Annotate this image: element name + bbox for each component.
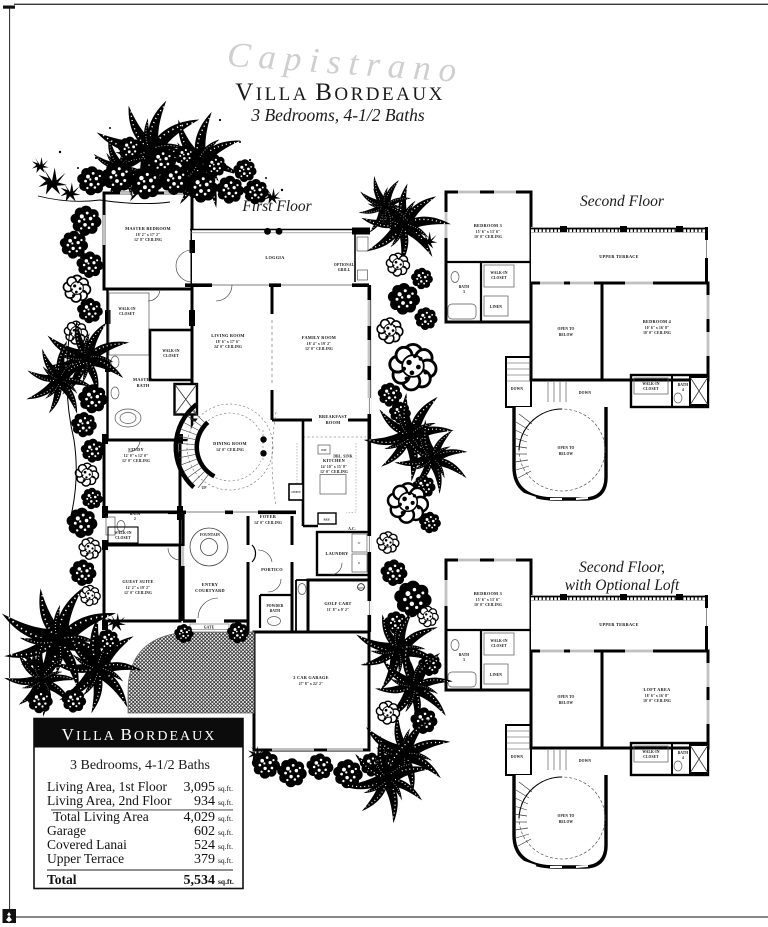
svg-text:Second Floor,: Second Floor,	[579, 559, 665, 576]
svg-text:KITCHEN: KITCHEN	[323, 458, 346, 463]
svg-text:UPPER TERRACE: UPPER TERRACE	[599, 254, 639, 259]
svg-text:Garage: Garage	[47, 823, 86, 838]
svg-text:CLOSET: CLOSET	[491, 644, 507, 648]
svg-text:GUEST SUITE: GUEST SUITE	[122, 579, 153, 584]
svg-text:Total: Total	[47, 872, 77, 887]
svg-text:DOWN: DOWN	[579, 391, 591, 395]
svg-text:3 Bedrooms, 4-1/2 Baths: 3 Bedrooms, 4-1/2 Baths	[250, 105, 425, 125]
svg-text:MASTER: MASTER	[133, 377, 154, 382]
svg-text:OPEN TO: OPEN TO	[558, 327, 575, 331]
svg-text:WALK-IN: WALK-IN	[642, 382, 659, 386]
svg-text:LOGGIA: LOGGIA	[265, 255, 285, 260]
svg-text:LINEN: LINEN	[490, 305, 502, 309]
svg-text:DW: DW	[321, 448, 326, 452]
svg-text:12' 2" x 19' 2": 12' 2" x 19' 2"	[126, 586, 150, 590]
svg-text:18' 4" x 19' 2": 18' 4" x 19' 2"	[307, 342, 331, 346]
svg-text:BELOW: BELOW	[559, 820, 574, 824]
svg-text:10' 6" x 16' 8": 10' 6" x 16' 8"	[645, 326, 669, 330]
svg-text:ENTRY: ENTRY	[202, 582, 219, 587]
svg-text:14' 10" x 15' 8": 14' 10" x 15' 8"	[321, 465, 347, 469]
svg-text:sq.ft.: sq.ft.	[218, 856, 233, 865]
svg-text:LINEN: LINEN	[490, 673, 502, 677]
svg-text:UPPER TERRACE: UPPER TERRACE	[599, 622, 639, 627]
svg-text:Second Floor: Second Floor	[580, 193, 665, 210]
svg-text:WALK-IN: WALK-IN	[490, 639, 507, 643]
svg-text:4: 4	[682, 756, 684, 760]
svg-text:934: 934	[194, 794, 215, 809]
svg-text:5,534: 5,534	[184, 873, 216, 888]
svg-text:18' 6" x 17' 6": 18' 6" x 17' 6"	[216, 340, 240, 344]
svg-text:DOWN: DOWN	[511, 387, 523, 391]
svg-text:ROOM: ROOM	[326, 420, 341, 425]
svg-text:sq.ft.: sq.ft.	[218, 842, 233, 851]
svg-text:12' 0" x 12' 0": 12' 0" x 12' 0"	[124, 454, 148, 458]
svg-text:WALK-IN: WALK-IN	[114, 531, 131, 535]
svg-text:15' 6" x 13' 6": 15' 6" x 13' 6"	[476, 230, 500, 234]
svg-text:BATH: BATH	[459, 653, 470, 657]
svg-text:DOWN: DOWN	[511, 755, 523, 759]
svg-text:BELOW: BELOW	[559, 333, 574, 337]
svg-text:CLOSET: CLOSET	[643, 755, 659, 759]
svg-text:BELOW: BELOW	[559, 701, 574, 705]
svg-text:10' 0" CEILING: 10' 0" CEILING	[474, 235, 502, 239]
svg-text:Total Living Area: Total Living Area	[53, 809, 149, 824]
svg-text:OPTIONAL: OPTIONAL	[334, 263, 355, 267]
svg-text:CLOSET: CLOSET	[491, 276, 507, 280]
svg-text:OPEN TO: OPEN TO	[558, 695, 575, 699]
svg-text:W: W	[358, 541, 361, 545]
svg-text:BATH: BATH	[459, 285, 470, 289]
svg-text:DOWN: DOWN	[579, 759, 591, 763]
svg-text:3: 3	[463, 658, 465, 662]
svg-text:18' 6" x 16' 8": 18' 6" x 16' 8"	[645, 694, 669, 698]
svg-text:FOUNTAIN: FOUNTAIN	[200, 533, 220, 537]
svg-text:LOFT AREA: LOFT AREA	[644, 687, 672, 692]
svg-text:BATH: BATH	[678, 383, 689, 387]
svg-text:sq.ft.: sq.ft.	[218, 877, 234, 886]
svg-text:BEDROOM 3: BEDROOM 3	[474, 223, 502, 228]
svg-text:12' 0" CEILING: 12' 0" CEILING	[305, 347, 333, 351]
svg-text:COURTYARD: COURTYARD	[195, 588, 225, 593]
svg-text:POWDER: POWDER	[266, 604, 283, 608]
svg-text:CLOSET: CLOSET	[163, 354, 179, 358]
svg-text:14' 0" CEILING: 14' 0" CEILING	[254, 521, 282, 525]
svg-text:STUDY: STUDY	[128, 447, 144, 452]
svg-text:4,029: 4,029	[184, 810, 216, 825]
svg-text:FAMILY ROOM: FAMILY ROOM	[302, 335, 336, 340]
svg-text:UP: UP	[201, 486, 207, 490]
svg-text:CLOSET: CLOSET	[643, 387, 659, 391]
svg-text:15' 6" x 13' 6": 15' 6" x 13' 6"	[476, 598, 500, 602]
svg-text:3: 3	[463, 290, 465, 294]
svg-text:BATH: BATH	[270, 609, 281, 613]
svg-text:LIVING ROOM: LIVING ROOM	[211, 333, 244, 338]
svg-text:LAUNDRY: LAUNDRY	[325, 551, 349, 556]
svg-text:12' 8" CEILING: 12' 8" CEILING	[134, 238, 162, 242]
svg-text:WH: WH	[359, 586, 365, 590]
svg-text:CLOSET: CLOSET	[119, 312, 135, 316]
svg-text:2 CAR GARAGE: 2 CAR GARAGE	[293, 675, 328, 680]
svg-text:10' 0" CEILING: 10' 0" CEILING	[643, 331, 671, 335]
svg-text:DINING ROOM: DINING ROOM	[213, 441, 247, 446]
svg-text:BREAKFAST: BREAKFAST	[319, 414, 347, 419]
svg-text:12' 0" CEILING: 12' 0" CEILING	[124, 591, 152, 595]
svg-text:27' 8" x 22' 2": 27' 8" x 22' 2"	[299, 682, 323, 686]
svg-text:379: 379	[194, 852, 215, 867]
svg-text:10' 0" CEILING: 10' 0" CEILING	[643, 699, 671, 703]
svg-text:sq.ft.: sq.ft.	[218, 784, 233, 793]
svg-text:BATH: BATH	[137, 383, 150, 388]
svg-text:DBL. SINK: DBL. SINK	[333, 455, 352, 459]
svg-text:Upper Terrace: Upper Terrace	[47, 851, 124, 866]
svg-text:with Optional Loft: with Optional Loft	[565, 577, 680, 594]
svg-text:WALK-IN: WALK-IN	[490, 271, 507, 275]
svg-text:BEDROOM 4: BEDROOM 4	[643, 319, 672, 324]
svg-text:PORTICO: PORTICO	[261, 567, 283, 572]
svg-text:CLOSET: CLOSET	[115, 536, 131, 540]
svg-text:VILLA BORDEAUX: VILLA BORDEAUX	[235, 79, 445, 106]
svg-text:12' 0" CEILING: 12' 0" CEILING	[320, 470, 348, 474]
svg-text:24' 0" CEILING: 24' 0" CEILING	[214, 345, 242, 349]
svg-text:11' 8" x 9' 2": 11' 8" x 9' 2"	[327, 608, 349, 612]
svg-text:WALK-IN: WALK-IN	[162, 349, 179, 353]
svg-text:sq.ft.: sq.ft.	[218, 798, 233, 807]
svg-text:3,095: 3,095	[184, 780, 216, 795]
svg-text:GRILL: GRILL	[338, 268, 351, 272]
svg-text:GOLF CART: GOLF CART	[324, 601, 351, 606]
svg-text:Living Area, 1st Floor: Living Area, 1st Floor	[47, 779, 167, 794]
svg-text:sq.ft.: sq.ft.	[218, 814, 233, 823]
svg-text:2: 2	[134, 517, 136, 521]
svg-text:Living Area, 2nd Floor: Living Area, 2nd Floor	[47, 793, 172, 808]
svg-text:OVEN: OVEN	[291, 490, 301, 494]
svg-text:4: 4	[682, 388, 684, 392]
svg-text:BATH: BATH	[678, 751, 689, 755]
svg-text:REF.: REF.	[324, 518, 331, 522]
svg-text:A.C.: A.C.	[348, 527, 356, 531]
svg-text:12' 0" CEILING: 12' 0" CEILING	[122, 459, 150, 463]
svg-text:524: 524	[194, 838, 215, 853]
svg-text:14' 0" CEILING: 14' 0" CEILING	[216, 448, 244, 452]
svg-text:18' 2" x 17' 2": 18' 2" x 17' 2"	[136, 233, 160, 237]
svg-text:Covered Lanai: Covered Lanai	[47, 837, 127, 852]
svg-text:FOYER: FOYER	[260, 514, 277, 519]
svg-text:10' 0" CEILING: 10' 0" CEILING	[474, 603, 502, 607]
svg-text:WALK-IN: WALK-IN	[118, 307, 135, 311]
svg-text:MASTER BEDROOM: MASTER BEDROOM	[125, 226, 171, 231]
svg-text:BEDROOM 3: BEDROOM 3	[474, 591, 502, 596]
svg-text:OPEN TO: OPEN TO	[558, 446, 575, 450]
svg-text:3 Bedrooms, 4-1/2 Baths: 3 Bedrooms, 4-1/2 Baths	[70, 758, 210, 773]
svg-text:sq.ft.: sq.ft.	[218, 828, 233, 837]
svg-text:602: 602	[194, 824, 215, 839]
svg-text:BELOW: BELOW	[559, 452, 574, 456]
svg-text:WALK-IN: WALK-IN	[642, 750, 659, 754]
svg-text:BATH: BATH	[130, 512, 141, 516]
svg-text:GATE: GATE	[204, 626, 215, 630]
svg-text:OPEN TO: OPEN TO	[558, 814, 575, 818]
